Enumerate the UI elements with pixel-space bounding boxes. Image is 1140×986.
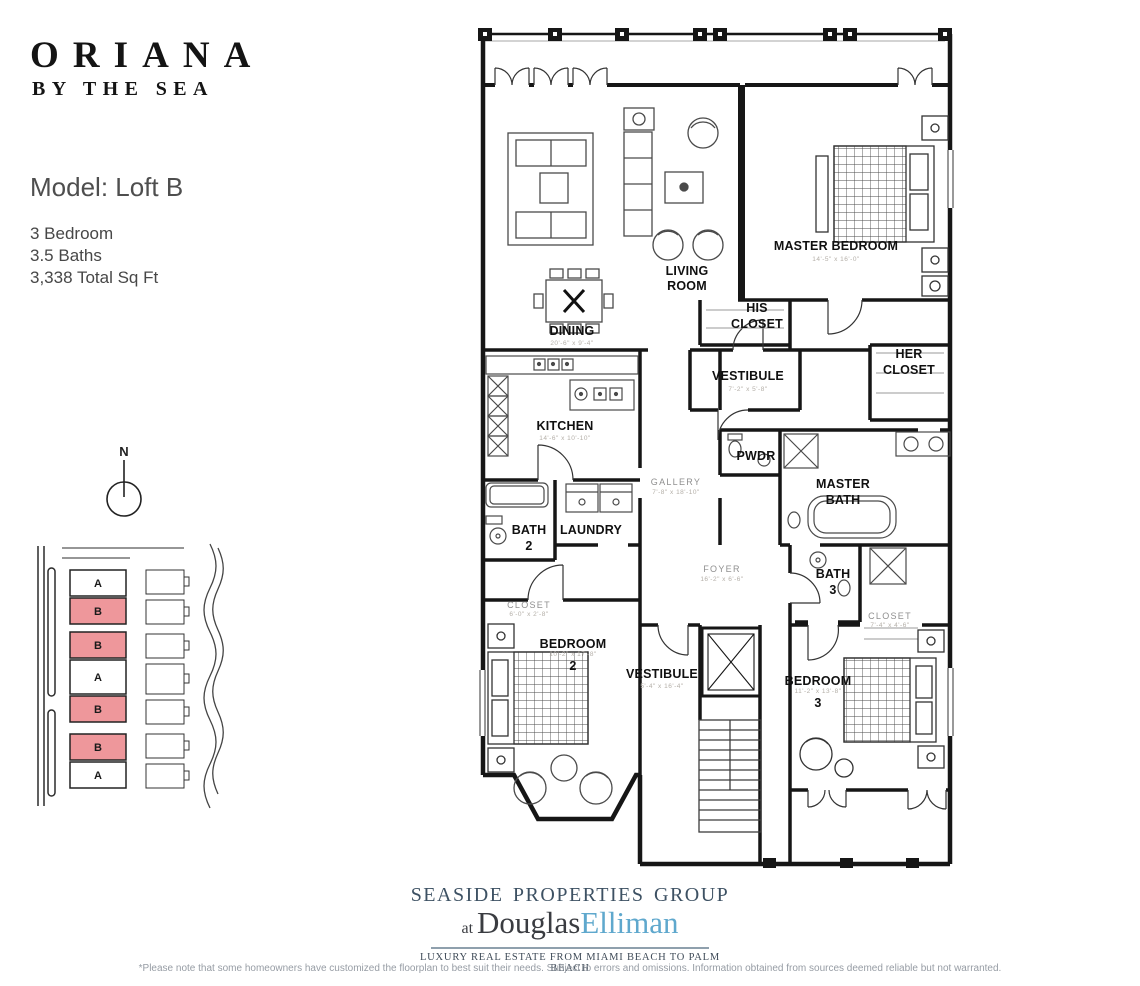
label-master-bath: BATH [826, 494, 861, 507]
dim-master-bedroom: 14'-5" x 16'-0" [812, 257, 859, 264]
living-room-furniture [508, 108, 723, 260]
brand-title: ORIANA [30, 34, 264, 77]
disclaimer-text: *Please note that some homeowners have c… [0, 963, 1140, 974]
spec-bedrooms: 3 Bedroom [30, 224, 113, 244]
broker-name-elliman: Elliman [580, 905, 678, 940]
label-bedroom-3: 3 [814, 697, 821, 710]
site-units-right [146, 570, 189, 788]
floorplan [478, 28, 958, 868]
elevator-icon [702, 628, 760, 696]
dim-bedroom-3: 11'-2" x 13'-8" [795, 689, 842, 696]
broker-logo: SEASIDE PROPERTIES GROUP at DouglasEllim… [408, 884, 732, 974]
label-his-closet: HIS [746, 302, 767, 315]
broker-group-name: SEASIDE PROPERTIES GROUP [408, 884, 732, 907]
label-living-room: LIVING [666, 265, 709, 278]
dim-gallery: 7'-8" x 18'-10" [652, 490, 699, 497]
label-bedroom-2: 2 [569, 660, 576, 673]
label-bath-2: 2 [525, 540, 532, 553]
brand-subtitle: BY THE SEA [32, 78, 214, 101]
label-her-closet: CLOSET [883, 364, 935, 377]
label-bath-2: BATH [512, 524, 547, 537]
label-laundry: LAUNDRY [560, 524, 622, 537]
site-plan: A B B A B B A [34, 542, 229, 810]
bay-window-furniture [514, 755, 612, 804]
flyer-page: { "brand": { "title": "ORIANA", "subtitl… [0, 0, 1140, 986]
dim-foyer: 16'-2" x 6'-6" [700, 577, 743, 584]
site-unit-label: A [94, 578, 102, 590]
site-shoreline [204, 544, 223, 808]
dim-kitchen: 14'-6" x 10'-10" [539, 436, 591, 443]
dim-vestibule-lower: 5'-4" x 16'-4" [640, 684, 683, 691]
label-living-room: ROOM [667, 280, 707, 293]
label-master-bedroom: MASTER BEDROOM [774, 240, 898, 253]
master-bed-icon [816, 116, 948, 296]
dim-dining: 20'-6" x 9'-4" [550, 341, 593, 348]
site-unit-label: B [94, 606, 102, 618]
spec-baths: 3.5 Baths [30, 246, 102, 266]
site-unit-label: B [94, 704, 102, 716]
stairs-icon [699, 720, 761, 832]
label-dining: DINING [550, 325, 595, 338]
label-foyer: FOYER [703, 565, 741, 574]
north-label: N [96, 444, 152, 459]
label-vestibule-upper: VESTIBULE [712, 370, 784, 383]
model-title: Model: Loft B [30, 172, 183, 203]
site-unit-label: B [94, 640, 102, 652]
broker-at: at [461, 920, 477, 937]
logo-divider [431, 947, 709, 949]
site-unit-label: A [94, 770, 102, 782]
broker-name-douglas: Douglas [477, 905, 580, 940]
dim-closet-bed3: 7'-4" x 4'-6" [870, 623, 909, 630]
label-bath-3: BATH [816, 568, 851, 581]
label-her-closet: HER [896, 348, 923, 361]
site-unit-label: A [94, 672, 102, 684]
north-compass-icon [96, 459, 152, 519]
site-unit-label: B [94, 742, 102, 754]
bedroom3-bed-icon [800, 630, 944, 777]
label-vestibule-lower: VESTIBULE [626, 668, 698, 681]
site-unit-labels: A B B A B B A [94, 578, 102, 782]
label-his-closet: CLOSET [731, 318, 783, 331]
label-closet-bed2: CLOSET [507, 601, 551, 610]
label-pwdr: PWDR [737, 450, 776, 463]
dim-vestibule-upper: 7'-2" x 5'-8" [728, 387, 767, 394]
dim-closet-bed2: 6'-0" x 2'-8" [509, 612, 548, 619]
label-bedroom-3: BEDROOM [785, 675, 852, 688]
label-closet-bed3: CLOSET [868, 612, 912, 621]
label-bath-3: 3 [829, 584, 836, 597]
north-compass: N [96, 444, 152, 524]
broker-brand-name: at DouglasElliman [408, 908, 732, 944]
label-bedroom-2: BEDROOM [540, 638, 607, 651]
dim-bedroom-2: 10'-2" x 17'-8" [549, 652, 596, 659]
label-master-bath: MASTER [816, 478, 870, 491]
label-kitchen: KITCHEN [537, 420, 594, 433]
spec-sqft: 3,338 Total Sq Ft [30, 268, 158, 288]
label-gallery: GALLERY [651, 478, 701, 487]
